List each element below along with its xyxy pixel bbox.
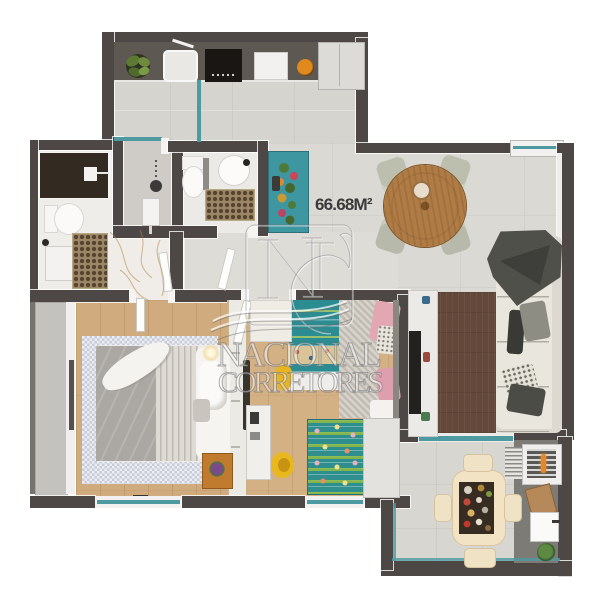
svg-text:CORRETORES: CORRETORES xyxy=(218,366,384,399)
